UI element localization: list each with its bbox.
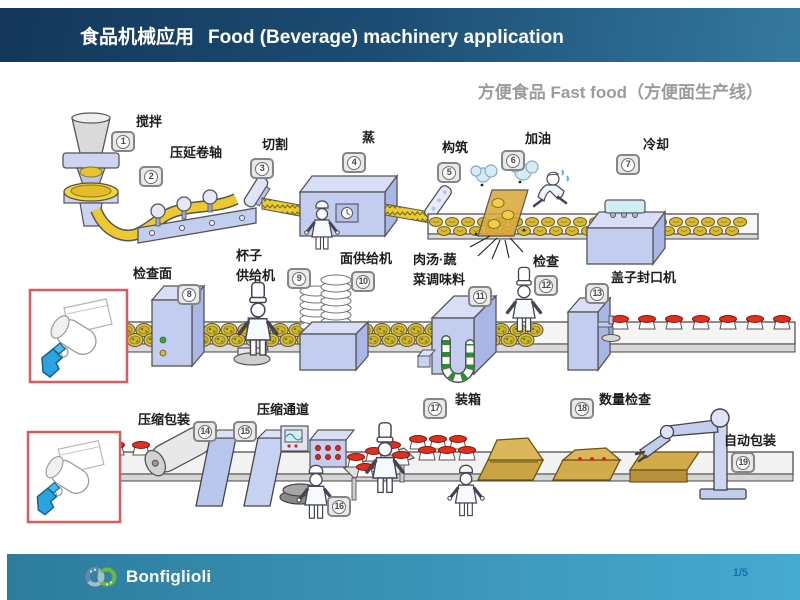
cup-cluster	[410, 436, 476, 461]
mixer-hopper	[63, 113, 119, 226]
production-line-diagram	[0, 0, 800, 600]
inset-gearmotor-1	[30, 290, 127, 382]
noodle-stack	[300, 275, 368, 370]
steam-puff-icon	[471, 161, 538, 182]
fryer	[470, 161, 538, 259]
noodle-sheet-1	[262, 198, 305, 217]
sweating-worker-icon	[534, 170, 568, 206]
slide: 食品机械应用Food (Beverage) machinery applicat…	[0, 0, 800, 600]
lid-sealer	[568, 298, 620, 370]
carton-open	[478, 438, 543, 480]
cooler-machine	[587, 200, 665, 264]
inset-gearmotor-2	[28, 432, 120, 522]
noodle-check-machine	[152, 286, 204, 366]
calender-rollers	[138, 190, 256, 243]
